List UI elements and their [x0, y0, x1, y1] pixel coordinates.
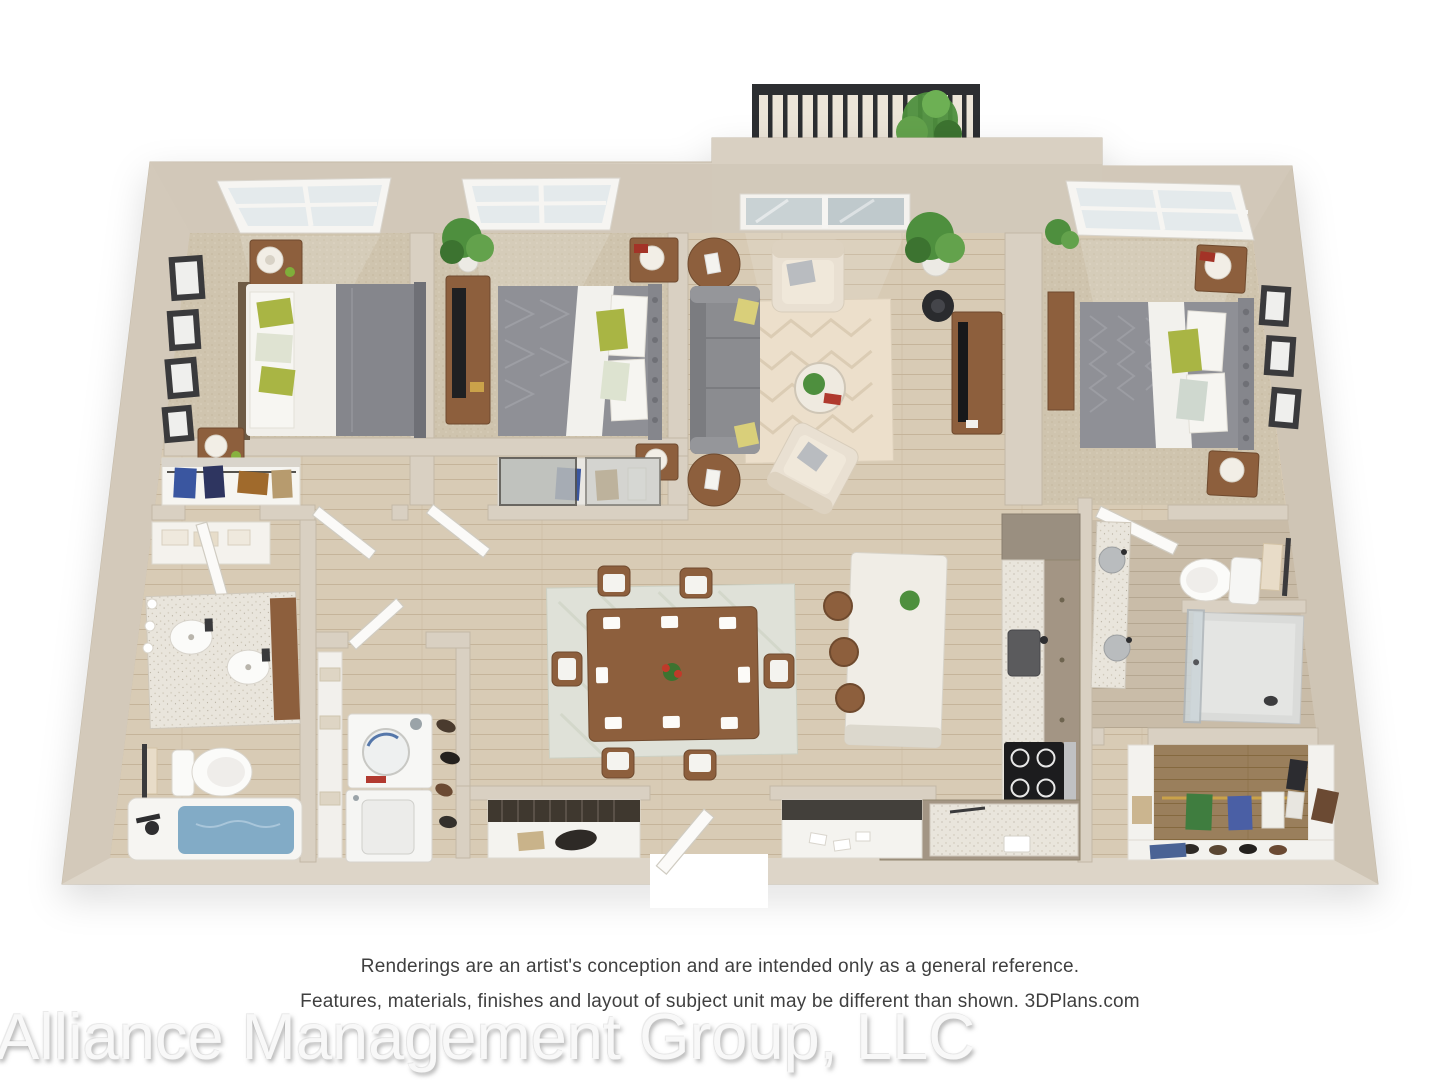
floor-plan-render	[0, 0, 1440, 1080]
walk-in-shower	[1184, 610, 1304, 726]
disclaimer-line-2: Features, materials, finishes and layout…	[0, 991, 1440, 1013]
round-side-table	[688, 454, 740, 506]
bathtub	[128, 798, 302, 860]
faucet-icon	[205, 618, 213, 631]
plant-icon	[803, 373, 825, 395]
kitchen-island	[845, 552, 948, 747]
nightstand	[250, 240, 302, 286]
green-pillow	[259, 366, 296, 396]
dining-chair	[552, 652, 582, 686]
floor-plan-svg	[0, 0, 1440, 1080]
dining-table	[587, 607, 759, 742]
bedroom-right-window	[1066, 181, 1254, 240]
walk-in-closet	[1128, 745, 1339, 860]
cooktop	[1004, 742, 1076, 804]
toilet	[172, 748, 252, 796]
sliding-glass-door	[740, 194, 910, 230]
sofa	[690, 286, 760, 454]
nightstand	[630, 238, 678, 282]
green-pillow	[596, 309, 628, 352]
accent-chair	[772, 240, 844, 312]
toilet	[1180, 557, 1262, 605]
dining-chair	[680, 568, 712, 598]
closet-hanging-clothes	[162, 458, 300, 505]
round-side-table	[688, 238, 740, 290]
green-pillow	[256, 298, 293, 328]
dining-area	[547, 566, 798, 780]
small-appliance	[1004, 836, 1030, 852]
tall-cabinet	[1002, 514, 1080, 560]
tv-icon	[958, 322, 968, 422]
screenshot-root: Alliance Management Group, LLC Rendering…	[0, 0, 1440, 1080]
shower-glass	[1184, 610, 1204, 722]
faucet-icon	[1121, 549, 1127, 555]
washer	[348, 714, 432, 788]
faucet-icon	[1126, 637, 1132, 643]
nightstand	[1207, 451, 1259, 498]
dryer	[346, 790, 432, 862]
lamp-icon	[205, 435, 227, 457]
disclaimer-line-1: Renderings are an artist's conception an…	[0, 956, 1440, 978]
bedroom-left-window	[217, 178, 391, 233]
double-vanity	[146, 591, 301, 728]
dining-chair	[602, 748, 634, 778]
faucet-icon	[262, 648, 270, 661]
dining-chair	[684, 750, 716, 780]
storage-box	[1132, 796, 1152, 824]
lamp-icon	[1220, 458, 1244, 482]
tv-icon	[452, 288, 466, 398]
folded-jeans	[1150, 843, 1187, 859]
tub-faucet-icon	[145, 821, 159, 835]
kitchen-sink	[1008, 630, 1040, 676]
vanity	[1091, 521, 1132, 688]
bed	[498, 284, 662, 440]
dining-chair	[764, 654, 794, 688]
sliding-door-closet	[498, 458, 660, 505]
entry-foyer	[488, 800, 922, 908]
storage-closet	[488, 800, 640, 858]
dresser-with-tv	[446, 276, 490, 424]
green-pillow	[1168, 329, 1202, 374]
bed	[238, 282, 426, 440]
storage-closet	[782, 800, 922, 858]
coffee-table	[795, 363, 845, 413]
faucet-icon	[1040, 636, 1048, 644]
dining-chair	[598, 566, 630, 596]
towel-bar	[1260, 538, 1291, 596]
towel-bar	[142, 744, 157, 798]
bedroom-middle-window	[462, 178, 620, 230]
accent-pillow	[734, 422, 759, 448]
nightstand	[1195, 245, 1247, 294]
linen-shelves	[318, 652, 342, 858]
bed	[1080, 298, 1254, 450]
dresser	[1048, 292, 1074, 410]
